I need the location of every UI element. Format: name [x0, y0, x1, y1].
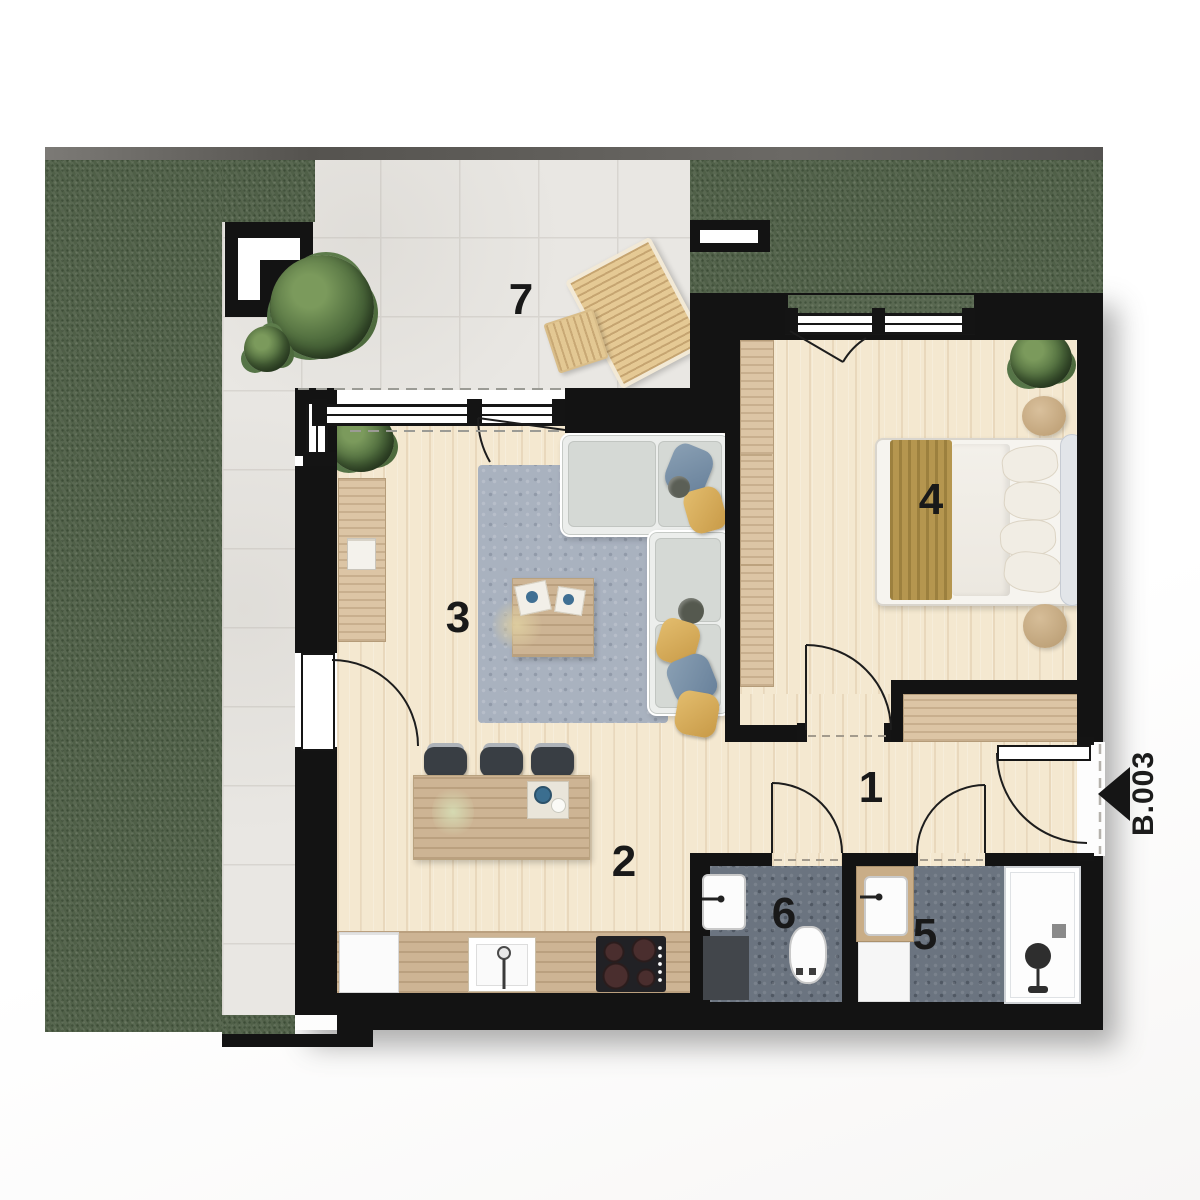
grass-sliver-bottom-left [222, 1015, 295, 1034]
grass-left [45, 158, 222, 1032]
wall-left-sliver-a [295, 404, 306, 456]
window-post [962, 308, 975, 334]
kitchen-fridge [339, 932, 399, 993]
window-post [312, 399, 327, 424]
wall-partition-living-bedroom [725, 433, 740, 742]
wall-bottom-thin-band [222, 1034, 373, 1047]
wall-hall-bedroom-jog [891, 694, 903, 742]
terrace-paving-side-strip [222, 390, 295, 1015]
dining-chair [480, 747, 523, 777]
wc-dark-unit [703, 936, 749, 1000]
wc-toilet-button [796, 968, 803, 975]
wall-hall-bedroom-right [891, 680, 1077, 694]
room-label-terrace: 7 [499, 278, 543, 322]
wall-left-low [295, 747, 337, 1015]
shower-tray [1004, 866, 1081, 1004]
threshold-bath-door [918, 853, 985, 866]
entrance-door-leaf [997, 745, 1091, 761]
room-label-wc: 6 [762, 892, 806, 936]
kitchen-sink-basin [476, 944, 528, 986]
sideboard-book [347, 538, 376, 570]
window-living-top [312, 404, 567, 426]
coffee-table-cup [526, 591, 538, 603]
entrance-frame-post [1077, 737, 1094, 745]
bedroom-wardrobe [740, 340, 774, 687]
wall-right-upper [1077, 340, 1103, 742]
door-frame-post [797, 723, 807, 742]
wc-washbasin [702, 874, 746, 930]
wall-bottom-kitchen [337, 993, 697, 1030]
neighbour-wall-marker-left-inner2 [238, 238, 260, 300]
wall-hall-bedroom-left [740, 725, 800, 742]
terrace-door-leaf [301, 653, 335, 751]
shower-control [1052, 924, 1066, 938]
unit-label: B.003 [1129, 756, 1159, 836]
wall-left-mid [295, 466, 337, 653]
entrance-arrow-icon [1098, 767, 1130, 821]
window-post [785, 308, 798, 334]
coffee-table-cup [563, 594, 574, 605]
room-label-hallway: 1 [849, 766, 893, 810]
entrance-frame-post [1077, 853, 1094, 861]
floor-plan: 7 3 4 2 1 6 5 B.003 [0, 0, 1200, 1200]
sofa-cushion [568, 441, 656, 527]
kitchen-cooktop [596, 936, 666, 992]
dining-table-decor-branch [432, 786, 474, 838]
threshold-wc-door [772, 853, 842, 866]
bath-washbasin [864, 876, 908, 936]
terrace-bush-small [244, 326, 290, 372]
window-post [872, 308, 885, 334]
window-post [303, 452, 337, 466]
hallway-wardrobe [903, 694, 1079, 742]
sofa-side-table [668, 476, 690, 498]
window-post [467, 399, 482, 424]
dining-chair [424, 747, 467, 777]
room-label-living: 3 [436, 596, 480, 640]
wc-toilet-button [809, 968, 816, 975]
wall-bottom-bath [697, 1002, 1103, 1030]
room-label-bedroom: 4 [909, 478, 953, 522]
dining-table-plate [551, 798, 566, 813]
dining-chair [531, 747, 574, 777]
wall-bath-top-b [842, 853, 918, 866]
room-label-kitchen: 2 [602, 840, 646, 884]
room-label-bathroom: 5 [903, 913, 947, 957]
grass-top-left [222, 158, 315, 222]
site-top-edge [45, 147, 1103, 160]
bedroom-round-table [1022, 396, 1066, 436]
neighbour-wall-marker-top-inner [700, 230, 758, 243]
dining-table-cup [534, 786, 552, 804]
sofa-pillow-gold [672, 689, 721, 740]
bedroom-pouf [1023, 604, 1067, 648]
